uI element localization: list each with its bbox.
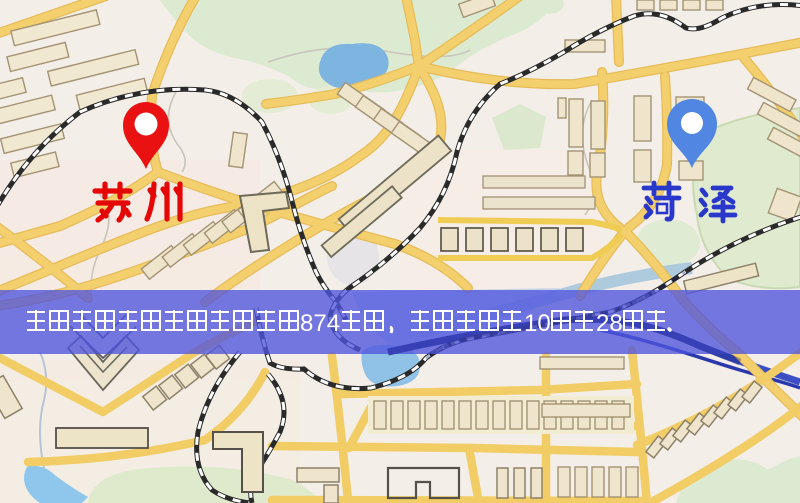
svg-text:28: 28	[596, 310, 623, 337]
svg-text:10: 10	[524, 310, 551, 337]
svg-text:874: 874	[300, 310, 340, 337]
